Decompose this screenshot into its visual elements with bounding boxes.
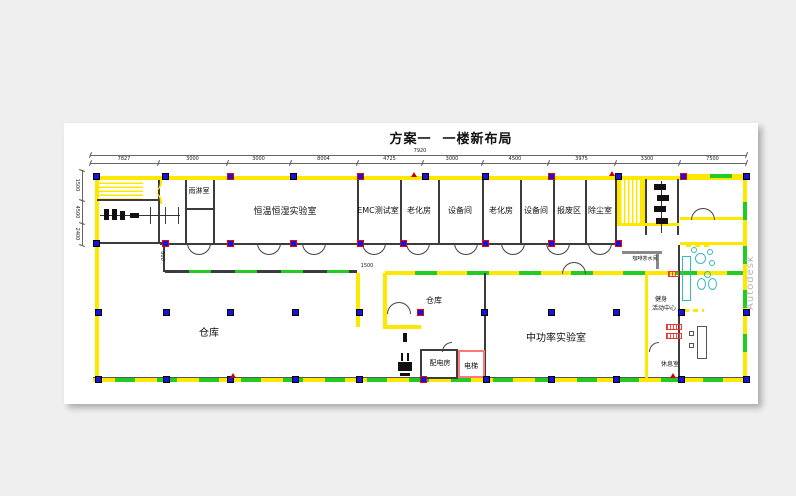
dashed-opening <box>686 244 712 247</box>
column-marker <box>357 173 364 180</box>
column-marker <box>292 309 299 316</box>
rain-room-inner-wall <box>185 208 213 210</box>
column-marker <box>482 173 489 180</box>
column-marker <box>356 309 363 316</box>
marker-triangle <box>609 171 615 176</box>
double-door <box>387 302 411 314</box>
dimension-value: 3000 <box>446 156 459 162</box>
column-marker <box>163 376 170 383</box>
wc-fixture <box>657 195 669 201</box>
equipment-symbol <box>400 373 410 376</box>
rain-room-right-wall <box>213 180 215 243</box>
passage-wall <box>356 273 360 327</box>
equipment-symbol <box>401 353 403 361</box>
small-warehouse-left-wall <box>383 273 387 327</box>
room-label-rain: 雨淋室 <box>189 186 210 196</box>
partition-wall <box>585 180 587 243</box>
column-marker <box>357 240 364 247</box>
dimension-line-left: 150045002400 <box>82 170 83 245</box>
double-door <box>454 243 478 255</box>
column-marker <box>615 240 622 247</box>
column-marker <box>95 309 102 316</box>
dimension-value: 1500 <box>74 179 80 192</box>
furniture-chair <box>697 278 706 290</box>
dimension-tick <box>289 160 292 166</box>
marker-triangle <box>411 172 417 177</box>
partition-wall <box>553 180 555 243</box>
column-marker <box>678 376 685 383</box>
double-door <box>406 243 430 255</box>
wc-fixture <box>112 209 117 220</box>
power-room-door <box>442 342 452 352</box>
column-marker <box>163 309 170 316</box>
desk-chair <box>689 331 694 336</box>
furniture-chair <box>704 271 711 278</box>
column-marker <box>422 173 429 180</box>
column-marker <box>548 376 555 383</box>
wall-left <box>95 176 99 380</box>
desk-chair <box>689 343 694 348</box>
column-marker <box>93 240 100 247</box>
wc-fixture <box>130 213 139 218</box>
dimension-value: 3300 <box>641 156 654 162</box>
wc-fixture <box>104 209 109 220</box>
dimension-tick <box>481 160 484 166</box>
dimension-tick <box>89 160 92 166</box>
column-marker <box>290 240 297 247</box>
small-warehouse-bottom-wall <box>383 325 421 329</box>
double-door <box>501 243 525 255</box>
column-marker <box>482 240 489 247</box>
dimension-corridor: 800 <box>159 251 165 261</box>
furniture-cabinet <box>682 256 691 301</box>
wc-fixture <box>120 211 125 220</box>
dimension-tick <box>157 160 160 166</box>
room-label-equip-1: 设备间 <box>448 205 472 216</box>
dimension-value: 8004 <box>317 156 330 162</box>
service-block-bottom-wall <box>93 242 163 244</box>
column-marker <box>615 173 622 180</box>
dimension-value: 2400 <box>74 228 80 241</box>
column-marker <box>227 173 234 180</box>
double-door <box>562 262 586 274</box>
stair-door-swing <box>150 180 162 192</box>
furniture-chair <box>709 260 715 266</box>
column-marker <box>680 173 687 180</box>
dimension-tick <box>79 199 85 202</box>
wc-fixture <box>656 218 668 224</box>
rain-room-left-wall <box>185 180 187 243</box>
furniture-chair <box>691 247 697 253</box>
room-label-warehouse-large: 仓库 <box>199 324 219 339</box>
dimension-tick <box>356 160 359 166</box>
column-marker <box>743 309 750 316</box>
right-corridor-wall <box>617 223 679 226</box>
equipment-symbol <box>398 362 412 371</box>
room-label-const-temp-lab: 恒温恒湿实验室 <box>253 204 316 217</box>
dimension-value: 3000 <box>186 156 199 162</box>
room-label-emc: EMC测试室 <box>357 205 399 216</box>
dimension-line-segments: 7827300030008004472530004500397533007500 <box>90 163 746 164</box>
column-marker <box>481 309 488 316</box>
dimension-value: 3000 <box>252 156 265 162</box>
staircase-right <box>620 180 641 223</box>
staircase-left <box>97 179 143 200</box>
dimension-value-overall: 7920 <box>414 148 427 154</box>
dimension-tick <box>79 169 85 172</box>
corridor-wall-window <box>165 270 357 273</box>
wc-right-left-wall <box>645 179 647 235</box>
column-marker <box>162 173 169 180</box>
room-label-equip-2: 设备间 <box>524 205 548 216</box>
double-door <box>257 243 281 255</box>
column-marker <box>162 240 169 247</box>
dimension-tick <box>79 244 85 247</box>
partition-wall <box>520 180 522 243</box>
wc-fixture <box>654 184 666 190</box>
dimension-tick <box>745 152 748 158</box>
drawing-sheet: 方案一 一楼新布局 7920 7827300030008004472530004… <box>64 123 758 404</box>
furniture-table <box>695 253 706 264</box>
equipment-tag <box>666 333 682 339</box>
column-marker <box>420 376 427 383</box>
room-label-power-room: 配电房 <box>430 358 451 368</box>
equipment-symbol <box>407 353 409 361</box>
column-marker <box>743 173 750 180</box>
dimension-tick <box>614 160 617 166</box>
column-marker <box>678 309 685 316</box>
double-door <box>302 243 326 255</box>
room-label-mid-power-lab: 中功率实验室 <box>526 329 586 344</box>
dimension-value: 4500 <box>74 205 80 218</box>
room-label-aging-2: 老化房 <box>489 205 513 216</box>
column-marker <box>417 309 424 316</box>
column-marker <box>95 376 102 383</box>
dimension-tick <box>89 152 92 158</box>
room-label-lounge: 休息室 <box>661 359 679 368</box>
column-marker <box>743 376 750 383</box>
room-label-fitness-line1: 健身 <box>655 294 667 303</box>
dimension-tick <box>421 160 424 166</box>
column-marker <box>548 173 555 180</box>
column-marker <box>292 376 299 383</box>
column-marker <box>548 240 555 247</box>
dimension-value: 3975 <box>575 156 588 162</box>
furniture-chair <box>708 278 717 290</box>
partition-wall <box>438 180 440 243</box>
equipment-tag <box>666 324 682 330</box>
dimension-value: 4725 <box>383 156 396 162</box>
top-right-room-door <box>691 208 715 220</box>
wc-right-right-wall <box>677 179 679 235</box>
column-marker <box>227 240 234 247</box>
dashed-opening <box>684 309 704 312</box>
double-door <box>588 243 612 255</box>
column-marker <box>613 376 620 383</box>
column-marker <box>93 173 100 180</box>
water-dispenser <box>668 271 679 277</box>
room-label-aging-1: 老化房 <box>407 205 431 216</box>
desk <box>697 326 707 359</box>
room-label-elevator: 电梯 <box>464 361 478 371</box>
room-label-fitness-line2: 活动中心 <box>652 303 676 312</box>
fitness-left-wall <box>645 273 648 380</box>
dimension-value: 7500 <box>706 156 719 162</box>
dimension-passage: 1500 <box>361 263 374 269</box>
room-label-warehouse-small: 仓库 <box>426 295 442 306</box>
column-marker <box>483 376 490 383</box>
column-marker <box>400 240 407 247</box>
double-door <box>187 243 211 255</box>
dimension-tick <box>547 160 550 166</box>
dimension-value: 4500 <box>509 156 522 162</box>
room-label-dust: 除尘室 <box>588 205 612 216</box>
small-fixture <box>403 333 407 342</box>
lounge-door <box>649 342 659 352</box>
marker-triangle <box>230 373 236 378</box>
wc-fixture <box>654 206 666 212</box>
column-marker <box>290 173 297 180</box>
plan-title: 方案一 一楼新布局 <box>351 128 551 147</box>
partition-wall <box>400 180 402 243</box>
room-label-tea-room: 咖啡茶水间 <box>632 255 657 262</box>
partition-wall <box>482 180 484 243</box>
dimension-tick <box>745 160 748 166</box>
double-door <box>362 243 386 255</box>
column-marker <box>356 376 363 383</box>
screenshot-background: 方案一 一楼新布局 7920 7827300030008004472530004… <box>0 0 796 496</box>
autodesk-watermark: Autodesk <box>745 185 756 310</box>
dimension-tick <box>678 160 681 166</box>
column-marker <box>613 309 620 316</box>
dimension-tick <box>226 160 229 166</box>
dimension-value: 7827 <box>118 156 131 162</box>
top-right-room-top-wall <box>680 174 743 178</box>
room-label-scrap: 报废区 <box>557 205 581 216</box>
marker-triangle <box>670 373 676 378</box>
column-marker <box>548 309 555 316</box>
column-marker <box>227 309 234 316</box>
stair-door-swing <box>150 192 162 204</box>
dimension-tick <box>79 222 85 225</box>
furniture-chair <box>707 249 713 255</box>
